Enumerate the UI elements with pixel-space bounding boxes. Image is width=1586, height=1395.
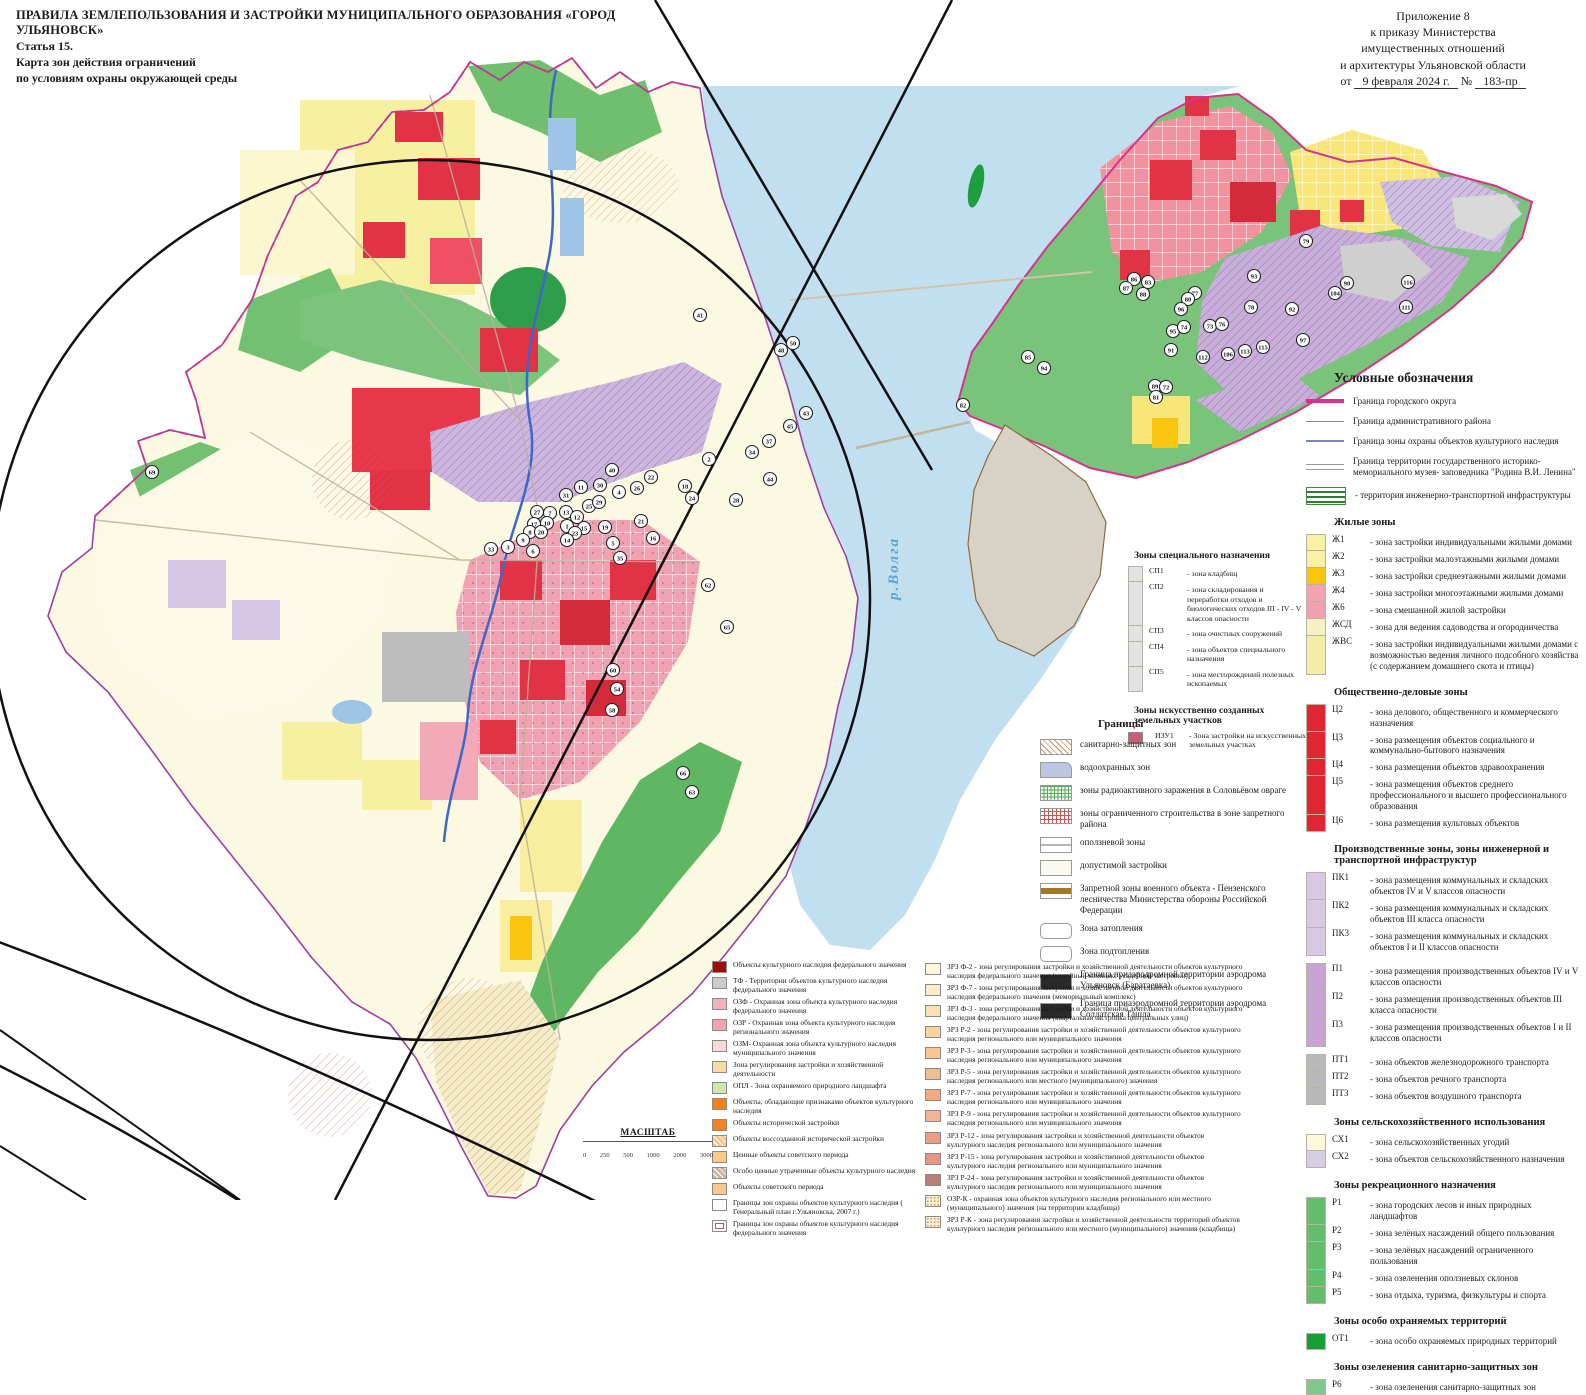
legend-label: - зона размещения коммунальных и складск…	[1366, 900, 1580, 928]
marker-number: 113	[1240, 348, 1250, 355]
legend-item: ОТ1- зона особо охраняемых природных тер…	[1306, 1333, 1580, 1350]
map-marker[interactable]: 2	[703, 453, 716, 466]
legend-item: Запретной зоны военного объекта - Пензен…	[1040, 883, 1298, 916]
map-marker[interactable]: 27	[531, 506, 544, 519]
map-marker[interactable]: 4	[613, 486, 626, 499]
marker-number: 19	[602, 524, 609, 531]
legend-label: - зона зелёных насаждений ограниченного …	[1366, 1242, 1580, 1270]
marker-number: 48	[778, 347, 785, 354]
marker-number: 97	[1300, 337, 1307, 344]
color-swatch	[925, 1132, 941, 1144]
map-marker[interactable]: 76	[1216, 318, 1229, 331]
zone-code: СП3	[1143, 626, 1183, 635]
legend-item: зоны ограниченного строительства в зоне …	[1040, 808, 1298, 830]
legend-label: - зона размещения культовых объектов	[1366, 815, 1519, 832]
marker-number: 18	[682, 483, 689, 490]
legend-item: Р2- зона зелёных насаждений общего польз…	[1306, 1225, 1580, 1242]
map-marker[interactable]: 5	[607, 537, 620, 550]
color-swatch	[1306, 928, 1326, 956]
map-marker[interactable]: 74	[1178, 321, 1191, 334]
legend-item: Р3- зона зелёных насаждений ограниченног…	[1306, 1242, 1580, 1270]
map-marker[interactable]: 18	[679, 480, 692, 493]
map-marker[interactable]: 35	[614, 552, 627, 565]
color-swatch	[712, 1220, 727, 1232]
legend-item: Граница административного района	[1306, 416, 1580, 427]
map-marker[interactable]: 83	[1142, 276, 1155, 289]
legend-item: ЗРЗ Р-12 - зона регулирования застройки …	[925, 1131, 1243, 1149]
map-marker[interactable]: 106	[1222, 348, 1235, 361]
marker-number: 94	[1041, 365, 1048, 372]
map-marker[interactable]: 43	[800, 407, 813, 420]
marker-number: 31	[563, 492, 570, 499]
legend-title: Условные обозначения	[1334, 370, 1580, 386]
marker-number: 106	[1223, 351, 1234, 358]
legend-item: Р4- зона озеленения оползневых склонов	[1306, 1270, 1580, 1287]
legend-item: оползневой зоны	[1040, 837, 1298, 853]
color-swatch	[1128, 626, 1143, 642]
map-marker[interactable]: 90	[1341, 277, 1354, 290]
legend-item: допустимой застройки	[1040, 860, 1298, 876]
legend-label: ОЗМ- Охранная зона объекта культурного н…	[733, 1039, 922, 1057]
legend-item: Зона подтопления	[1040, 946, 1298, 962]
legend-item: ЗРЗ Р-24 - зона регулирования застройки …	[925, 1173, 1243, 1191]
zone-code: ЖСД	[1326, 619, 1366, 629]
marker-number: 104	[1330, 290, 1341, 297]
marker-number: 1	[565, 523, 568, 530]
legend-item: ОПЛ - Зона охраняемого природного ландша…	[712, 1081, 922, 1094]
legend-label: - зона застройки среднеэтажными жилыми д…	[1366, 568, 1566, 585]
legend-item: ЗРЗ Ф-2 - зона регулирования застройки и…	[925, 962, 1243, 980]
color-swatch	[1306, 1197, 1326, 1225]
zone-code: ОТ1	[1326, 1333, 1366, 1343]
legend-item: СХ1- зона сельскохозяйственных угодий	[1306, 1134, 1580, 1151]
legend-label: ОЗР - Охранная зона объекта культурного …	[733, 1018, 922, 1036]
map-marker[interactable]: 48	[775, 344, 788, 357]
legend-label: - зона размещения объектов здравоохранен…	[1366, 759, 1544, 776]
zone-code: СП4	[1143, 642, 1183, 651]
legend-item: Ж2- зона застройки малоэтажными жилыми д…	[1306, 551, 1580, 568]
legend-label: Граница территории государственного исто…	[1353, 456, 1580, 478]
marker-number: 28	[733, 497, 740, 504]
map-marker[interactable]: 31	[560, 489, 573, 502]
legend-label: Граница городского округа	[1353, 396, 1456, 407]
legend-item: СП5- зона месторождений полезных ископае…	[1128, 667, 1306, 692]
map-marker[interactable]: 93	[1248, 270, 1261, 283]
map-marker[interactable]: 116	[1402, 276, 1415, 289]
color-swatch	[1040, 739, 1072, 755]
color-swatch	[1306, 872, 1326, 900]
legend-label: Особо ценные утраченные объекты культурн…	[733, 1166, 915, 1175]
legend-item: СП2- зона складирования и переработки от…	[1128, 582, 1306, 626]
legend-label: ЗРЗ Ф-7 - зона регулирования застройки и…	[947, 983, 1243, 1001]
legend-label: ЗРЗ Р-5 - зона регулирования застройки и…	[947, 1067, 1243, 1085]
zone-code: Ц6	[1326, 815, 1366, 825]
map-marker[interactable]: 62	[702, 579, 715, 592]
legend-label: - зона объектов воздушного транспорта	[1366, 1088, 1522, 1105]
color-swatch	[712, 1119, 727, 1131]
map-marker[interactable]: 96	[1175, 303, 1188, 316]
map-marker[interactable]: 41	[694, 309, 707, 322]
legend-label: - зона озеленения оползневых склонов	[1366, 1270, 1518, 1287]
map-marker[interactable]: 92	[1286, 303, 1299, 316]
legend-item: СХ2- зона объектов сельскохозяйственного…	[1306, 1151, 1580, 1168]
legend-item: ЗРЗ Р-5 - зона регулирования застройки и…	[925, 1067, 1243, 1085]
map-marker[interactable]: 82	[957, 399, 970, 412]
zone-code: Ц3	[1326, 732, 1366, 742]
color-swatch	[1128, 582, 1143, 626]
color-swatch	[925, 1174, 941, 1186]
color-swatch	[1306, 963, 1326, 991]
legend-item: ЗРЗ Ф-3 - зона регулирования застройки и…	[925, 1004, 1243, 1022]
legend-item: Объекты воссозданной исторической застро…	[712, 1134, 922, 1147]
legend-item: ЖВС- зона застройки индивидуальными жилы…	[1306, 636, 1580, 675]
marker-number: 20	[538, 529, 545, 536]
marker-number: 34	[749, 449, 756, 456]
marker-number: 72	[1163, 384, 1170, 391]
scale-tick: 3000	[700, 1152, 713, 1159]
section-title-borders: Границы	[1098, 718, 1298, 730]
zone-code: П3	[1326, 1019, 1366, 1029]
marker-number: 85	[1025, 354, 1032, 361]
marker-number: 41	[697, 312, 704, 319]
map-marker[interactable]: 79	[1300, 235, 1313, 248]
section-title-recreation: Зоны рекреационного назначения	[1334, 1180, 1580, 1191]
legend-item: ТФ - Территории объектов культурного нас…	[712, 976, 922, 994]
zone-code: ЖВС	[1326, 636, 1366, 646]
legend-label: - зона размещения коммунальных и складск…	[1366, 928, 1580, 956]
legend-item: Ж6- зона смешанной жилой застройки	[1306, 602, 1580, 619]
map-marker[interactable]: 94	[1038, 362, 1051, 375]
map-marker[interactable]: 115	[1257, 341, 1270, 354]
legend-item: П1- зона размещения производственных объ…	[1306, 963, 1580, 991]
marker-number: 83	[1145, 279, 1152, 286]
marker-number: 112	[1198, 354, 1207, 361]
legend-item: Зона затопления	[1040, 923, 1298, 939]
map-marker[interactable]: 78	[1245, 301, 1258, 314]
color-swatch	[712, 998, 727, 1010]
map-marker[interactable]: 40	[606, 464, 619, 477]
marker-number: 35	[617, 555, 624, 562]
legend-label: - зона делового, общественного и коммерч…	[1366, 704, 1580, 732]
map-marker[interactable]: 20	[535, 526, 548, 539]
color-swatch	[1040, 923, 1072, 939]
color-swatch	[1306, 776, 1326, 815]
marker-number: 14	[564, 537, 571, 544]
legend-item: Ц3- зона размещения объектов социального…	[1306, 732, 1580, 760]
map-marker[interactable]: 9	[517, 534, 530, 547]
legend-item: Ц5- зона размещения объектов среднего пр…	[1306, 776, 1580, 815]
legend-label: Зона регулирования застройки и хозяйстве…	[733, 1060, 922, 1078]
color-swatch	[1306, 815, 1326, 832]
color-swatch	[1128, 566, 1143, 582]
map-marker[interactable]: 104	[1329, 287, 1342, 300]
color-swatch	[1040, 837, 1072, 853]
map-marker[interactable]: 14	[561, 534, 574, 547]
map-marker[interactable]: 29	[593, 496, 606, 509]
map-marker[interactable]: 19	[599, 521, 612, 534]
legend-item: Границы зон охраны объектов культурного …	[712, 1219, 922, 1237]
legend-item: ПК3- зона размещения коммунальных и скла…	[1306, 928, 1580, 956]
map-marker[interactable]: 26	[631, 482, 644, 495]
color-swatch	[1306, 759, 1326, 776]
marker-number: 116	[1403, 279, 1413, 286]
map-marker[interactable]: 3	[502, 541, 515, 554]
map-marker[interactable]: 30	[594, 479, 607, 492]
legend-label: Зона подтопления	[1080, 946, 1149, 957]
marker-number: 29	[596, 499, 603, 506]
color-swatch	[1306, 1242, 1326, 1270]
marker-number: 92	[1289, 306, 1296, 313]
zone-code: ПК3	[1326, 928, 1366, 938]
marker-number: 27	[534, 509, 541, 516]
legend-label: водоохранных зон	[1080, 762, 1150, 773]
legend-label: - зона размещения коммунальных и складск…	[1366, 872, 1580, 900]
map-marker[interactable]: 60	[607, 664, 620, 677]
color-swatch	[712, 1199, 727, 1211]
zone-code: П1	[1326, 963, 1366, 973]
map-marker[interactable]: 91	[1165, 344, 1178, 357]
marker-number: 95	[1170, 328, 1177, 335]
legend-label: - зона объектов речного транспорта	[1366, 1071, 1506, 1088]
color-swatch	[1306, 1225, 1326, 1242]
color-swatch	[925, 1026, 941, 1038]
marker-number: 63	[689, 789, 696, 796]
legend-item: Объекты советского периода	[712, 1182, 922, 1195]
marker-number: 91	[1168, 347, 1175, 354]
color-swatch	[712, 1135, 727, 1147]
legend-item: ЗРЗ Р-9 - зона регулирования застройки и…	[925, 1109, 1243, 1127]
marker-number: 65	[724, 624, 731, 631]
appendix-line: Приложение 8	[1290, 8, 1576, 24]
color-swatch	[712, 1019, 727, 1031]
legend-label: - зона зелёных насаждений общего пользов…	[1366, 1225, 1554, 1242]
legend-item: СП4- зона объектов специального назначен…	[1128, 642, 1306, 667]
legend-label: Запретной зоны военного объекта - Пензен…	[1080, 883, 1298, 916]
legend-label: - зона сельскохозяйственных угодий	[1366, 1134, 1509, 1151]
page-title: ПРАВИЛА ЗЕМЛЕПОЛЬЗОВАНИЯ И ЗАСТРОЙКИ МУН…	[16, 8, 666, 38]
map-marker[interactable]: 44	[764, 473, 777, 486]
map-marker[interactable]: 54	[611, 683, 624, 696]
color-swatch	[925, 1110, 941, 1122]
marker-number: 22	[648, 474, 655, 481]
map-marker[interactable]: 73	[1204, 320, 1217, 333]
legend-item: Р1- зона городских лесов и иных природны…	[1306, 1197, 1580, 1225]
zone-code: Ж3	[1326, 568, 1366, 578]
zone-code: ПТ1	[1326, 1054, 1366, 1064]
legend-label: - зона для ведения садоводства и огородн…	[1366, 619, 1558, 636]
zone-code: ПК1	[1326, 872, 1366, 882]
map-marker[interactable]: 6	[527, 545, 540, 558]
marker-number: 37	[766, 438, 773, 445]
legend-item: П2- зона размещения производственных объ…	[1306, 991, 1580, 1019]
legend-label: оползневой зоны	[1080, 837, 1145, 848]
map-marker[interactable]: 24	[686, 492, 699, 505]
legend-item: ЗРЗ Р-К - зона регулирования застройки и…	[925, 1215, 1243, 1233]
legend-label: Объекты советского периода	[733, 1182, 824, 1191]
marker-number: 69	[149, 469, 156, 476]
legend-label: Граница зоны охраны объектов культурного…	[1353, 436, 1559, 447]
zone-code: Р5	[1326, 1287, 1366, 1297]
map-marker[interactable]: 72	[1160, 381, 1173, 394]
color-swatch	[1306, 732, 1326, 760]
marker-number: 78	[1248, 304, 1255, 311]
scale-line	[583, 1141, 713, 1142]
map-marker[interactable]: 66	[677, 767, 690, 780]
color-swatch	[1040, 946, 1072, 962]
marker-number: 74	[1181, 324, 1188, 331]
color-swatch	[712, 1082, 727, 1094]
color-swatch	[1306, 900, 1326, 928]
marker-number: 26	[634, 485, 641, 492]
legend-industrial-p: П1- зона размещения производственных объ…	[1306, 963, 1580, 1047]
zone-code: Р1	[1326, 1197, 1366, 1207]
map-marker[interactable]: 111	[1400, 301, 1413, 314]
marker-number: 21	[638, 518, 645, 525]
map-marker[interactable]: 21	[635, 515, 648, 528]
marker-number: 50	[790, 340, 797, 347]
map-marker[interactable]: 65	[721, 621, 734, 634]
map-marker[interactable]: 16	[647, 532, 660, 545]
legend-item: Ж4- зона застройки многоэтажными жилыми …	[1306, 585, 1580, 602]
zone-code: Р4	[1326, 1270, 1366, 1280]
legend-item: Ж1- зона застройки индивидуальными жилым…	[1306, 534, 1580, 551]
marker-number: 66	[680, 770, 687, 777]
appendix-order-line: от 9 февраля 2024 г. № 183-пр	[1290, 73, 1576, 89]
color-swatch	[712, 1151, 727, 1163]
map-marker[interactable]: 58	[606, 704, 619, 717]
legend-label: ЗРЗ Р-24 - зона регулирования застройки …	[947, 1173, 1243, 1191]
map-marker[interactable]: 88	[1137, 288, 1150, 301]
color-swatch	[1306, 464, 1344, 470]
color-swatch	[925, 963, 941, 975]
section-title-industrial: Производственные зоны, зоны инженерной и…	[1334, 844, 1580, 866]
zone-code: Ж2	[1326, 551, 1366, 561]
legend-label: - зона застройки индивидуальными жилыми …	[1366, 534, 1572, 551]
map-marker[interactable]: 37	[763, 435, 776, 448]
color-swatch	[712, 961, 727, 973]
color-swatch	[925, 1047, 941, 1059]
map-marker[interactable]: 97	[1297, 334, 1310, 347]
legend-label: - зона размещения производственных объек…	[1366, 963, 1580, 991]
color-swatch	[1306, 619, 1326, 636]
zone-code: П2	[1326, 991, 1366, 1001]
map-marker[interactable]: 85	[1022, 351, 1035, 364]
marker-number: 96	[1178, 306, 1185, 313]
marker-number: 62	[705, 582, 712, 589]
legend-protected: ОТ1- зона особо охраняемых природных тер…	[1306, 1333, 1580, 1350]
color-swatch	[1128, 642, 1143, 667]
legend-label: Объекты, обладающие признаками объектов …	[733, 1097, 922, 1115]
map-marker[interactable]: 33	[485, 543, 498, 556]
color-swatch	[1040, 860, 1072, 876]
legend-item: ЗРЗ Р-7 - зона регулирования застройки и…	[925, 1088, 1243, 1106]
map-marker[interactable]: 112	[1197, 351, 1210, 364]
color-swatch	[1306, 1054, 1326, 1071]
map-marker[interactable]: 34	[746, 446, 759, 459]
legend-label: - зона размещения объектов среднего проф…	[1366, 776, 1580, 815]
map-marker[interactable]: 22	[645, 471, 658, 484]
marker-number: 111	[1401, 304, 1410, 311]
color-swatch	[1306, 1379, 1326, 1395]
legend-item: ОЗФ - Охранная зона объекта культурного …	[712, 997, 922, 1015]
scale-tick: 250	[600, 1152, 610, 1159]
map-marker[interactable]: 45	[784, 420, 797, 433]
map-marker[interactable]: 113	[1239, 345, 1252, 358]
color-swatch	[1040, 762, 1072, 778]
order-number-sign: №	[1461, 74, 1472, 88]
order-prefix: от	[1340, 74, 1351, 88]
legend-label: ЗРЗ Ф-2 - зона регулирования застройки и…	[947, 962, 1243, 980]
legend-label: Ценные объекты советского периода	[733, 1150, 849, 1159]
legend-label: Объекты исторической застройки	[733, 1118, 839, 1127]
map-marker[interactable]: 63	[686, 786, 699, 799]
marker-number: 58	[609, 707, 616, 714]
legend-label: - зона отдыха, туризма, физкультуры и сп…	[1366, 1287, 1546, 1304]
zone-code: Ц4	[1326, 759, 1366, 769]
legend-item: Объекты исторической застройки	[712, 1118, 922, 1131]
marker-number: 86	[1131, 276, 1138, 283]
color-swatch	[1306, 1270, 1326, 1287]
marker-number: 12	[574, 514, 581, 521]
legend-sanitary-green: Р6- зона озеленения санитарно-защитных з…	[1306, 1379, 1580, 1395]
marker-number: 88	[1140, 291, 1147, 298]
legend-label: Зона затопления	[1080, 923, 1143, 934]
appendix-block: Приложение 8 к приказу Министерства имущ…	[1290, 8, 1576, 89]
legend-item: СП3- зона очистных сооружений	[1128, 626, 1306, 642]
color-swatch	[1306, 421, 1344, 422]
marker-number: 33	[488, 546, 495, 553]
legend-label: - зона размещения производственных объек…	[1366, 1019, 1580, 1047]
legend-item: Ж3- зона застройки среднеэтажными жилыми…	[1306, 568, 1580, 585]
color-swatch	[712, 1098, 727, 1110]
legend-label: ОЗФ - Охранная зона объекта культурного …	[733, 997, 922, 1015]
color-swatch	[1306, 487, 1346, 505]
color-swatch	[712, 977, 727, 989]
color-swatch	[1306, 534, 1326, 551]
marker-number: 73	[1207, 323, 1214, 330]
zone-code: СП2	[1143, 582, 1183, 591]
legend-label: ЗРЗ Р-9 - зона регулирования застройки и…	[947, 1109, 1243, 1127]
map-marker[interactable]: 28	[730, 494, 743, 507]
map-marker[interactable]: 11	[575, 481, 588, 494]
legend-label: - зона размещения производственных объек…	[1366, 991, 1580, 1019]
legend-item: Объекты культурного наследия федеральног…	[712, 960, 922, 973]
color-swatch	[712, 1061, 727, 1073]
legend-industrial-pt: ПТ1- зона объектов железнодорожного тран…	[1306, 1054, 1580, 1105]
legend-special-list: СП1- зона кладбищСП2- зона складирования…	[1128, 566, 1306, 692]
scale-tick: 2000	[673, 1152, 686, 1159]
legend-item: Ценные объекты советского периода	[712, 1150, 922, 1163]
legend-label: санитарно-защитных зон	[1080, 739, 1176, 750]
legend-label: Границы зон охраны объектов культурного …	[733, 1219, 922, 1237]
legend-label: - зона складирования и переработки отход…	[1183, 582, 1306, 626]
legend-industrial-pk: ПК1- зона размещения коммунальных и скла…	[1306, 872, 1580, 956]
order-number: 183-пр	[1475, 74, 1525, 89]
legend-label: зоны ограниченного строительства в зоне …	[1080, 808, 1298, 830]
map-marker[interactable]: 50	[787, 337, 800, 350]
legend-residential: Ж1- зона застройки индивидуальными жилым…	[1306, 534, 1580, 675]
zone-code: ПК2	[1326, 900, 1366, 910]
legend-label: ЗРЗ Р-15 - зона регулирования застройки …	[947, 1152, 1243, 1170]
marker-number: 87	[1123, 285, 1130, 292]
legend-label: - зона застройки многоэтажными жилыми до…	[1366, 585, 1563, 602]
marker-number: 40	[609, 467, 616, 474]
map-marker[interactable]: 69	[146, 466, 159, 479]
map-marker[interactable]: 81	[1150, 391, 1163, 404]
legend-label: - зона объектов сельскохозяйственного на…	[1366, 1151, 1565, 1168]
map-marker[interactable]: 87	[1120, 282, 1133, 295]
color-swatch	[1306, 568, 1326, 585]
